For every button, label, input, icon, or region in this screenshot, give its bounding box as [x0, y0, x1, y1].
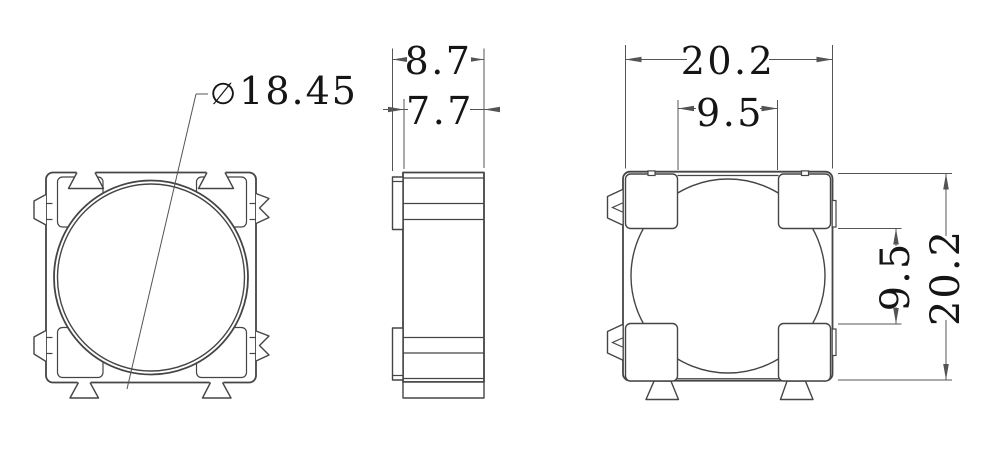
- back-pad-bottom-left: [626, 324, 678, 382]
- dim-side-inner-width: 7.7: [383, 89, 500, 169]
- back-left-tabs: [608, 190, 623, 361]
- back-pad-top-right: [779, 174, 831, 229]
- side-view: 8.7 7.7: [383, 39, 500, 398]
- front-bore-outer-circle: [54, 181, 248, 375]
- front-bottom-feet: [70, 381, 231, 398]
- side-feet-strip: [403, 382, 484, 398]
- dim-text-9-5-top: 9.5: [696, 91, 764, 135]
- back-pad-bottom-right: [779, 324, 831, 382]
- dim-back-pad-spacing-top: 9.5: [678, 91, 778, 170]
- drawing-canvas: ∅18.45 8.7: [0, 0, 1000, 461]
- dim-back-pad-spacing-right: 9.5: [838, 229, 919, 325]
- back-view: 20.2 9.5 9.5: [608, 39, 970, 400]
- dim-text-7-7: 7.7: [406, 89, 474, 133]
- back-pad-top-left: [626, 174, 678, 229]
- side-left-tabs: [393, 177, 404, 380]
- back-bottom-feet: [646, 381, 813, 399]
- dim-text-20-2-top: 20.2: [681, 39, 776, 83]
- dim-text-20-2-right: 20.2: [923, 229, 969, 326]
- dim-text-9-5-right: 9.5: [873, 242, 919, 312]
- diameter-label: ∅18.45: [210, 69, 358, 113]
- front-view: ∅18.45: [34, 69, 358, 398]
- technical-drawing-page: ∅18.45 8.7: [0, 0, 1000, 461]
- dim-text-8-7: 8.7: [405, 39, 473, 83]
